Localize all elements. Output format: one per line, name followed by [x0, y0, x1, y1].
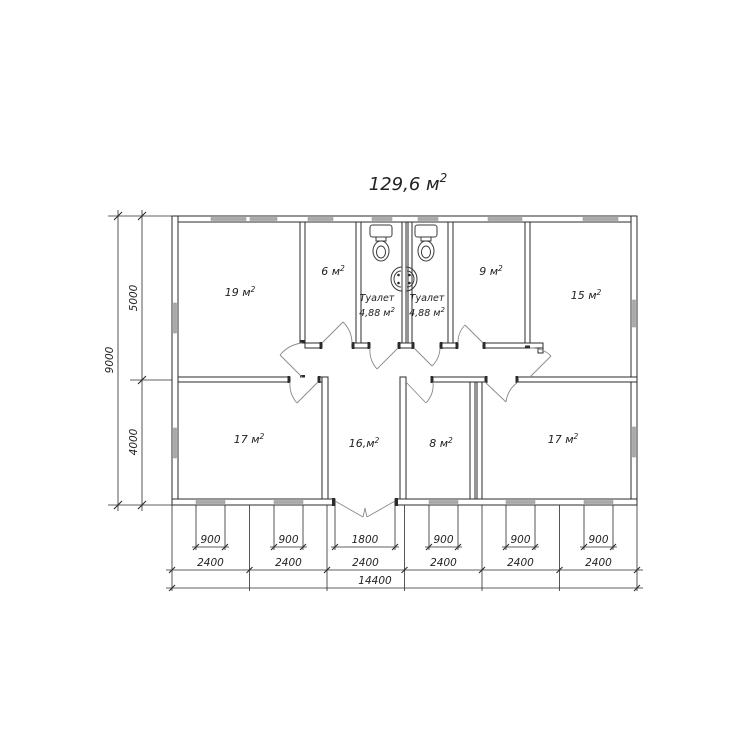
- window-marker: [250, 218, 277, 221]
- sink-icon: [391, 267, 402, 291]
- dim-opening-6: 900: [588, 534, 608, 546]
- door-swing-toilet1: [370, 348, 398, 369]
- dim-opening-2: 900: [278, 534, 298, 546]
- dim-module-6: 2400: [585, 557, 612, 569]
- toilet-icon: [415, 225, 437, 261]
- window-marker: [633, 427, 636, 457]
- window-marker: [506, 501, 535, 504]
- window-marker: [174, 303, 177, 333]
- dim-module-2: 2400: [275, 557, 302, 569]
- dim-opening-3: 1800: [352, 534, 379, 546]
- dim-module-3: 2400: [352, 557, 379, 569]
- total-area-title: 129,6 м2: [369, 171, 447, 195]
- dim-height-total: 9000: [104, 346, 116, 373]
- room-label-toilet2-area: 4,88 м2: [409, 306, 445, 319]
- room-label-19: 19 м2: [225, 285, 256, 299]
- room-label-6: 6 м2: [321, 264, 345, 278]
- toilet-icon: [370, 225, 392, 261]
- dim-module-5: 2400: [507, 557, 534, 569]
- door-swing-room8: [406, 382, 433, 403]
- room-label-toilet2-name: Туалет: [410, 293, 445, 304]
- door-swing-room19: [280, 343, 302, 377]
- room-label-17-right: 17 м2: [548, 432, 579, 446]
- room-label-17-left: 17 м2: [234, 432, 265, 446]
- window-marker: [274, 501, 303, 504]
- floor-plan-canvas: 129,6 м2: [0, 0, 750, 750]
- room-labels: 19 м2 6 м2 Туалет 4,88 м2 Туалет 4,88 м2…: [225, 264, 602, 450]
- dim-width-total: 14400: [358, 575, 392, 587]
- room-label-toilet1-name: Туалет: [360, 293, 395, 304]
- window-marker: [633, 300, 636, 327]
- dimension-lines-bottom: 900 900 1800 900 900 900 2400 2400 2400 …: [166, 505, 643, 591]
- dimension-lines-left: 5000 4000 9000: [104, 210, 172, 511]
- dim-height-bottom: 4000: [128, 428, 140, 455]
- dim-opening-4: 900: [433, 534, 453, 546]
- window-marker: [418, 218, 438, 221]
- dim-module-1: 2400: [197, 557, 224, 569]
- door-swing-room6: [322, 322, 352, 343]
- window-marker: [488, 218, 522, 221]
- window-marker: [196, 501, 225, 504]
- entrance-double-door: [335, 501, 395, 517]
- dim-height-top: 5000: [128, 284, 140, 311]
- doors: [280, 322, 551, 517]
- room-label-hall-16: 16,м2: [349, 436, 380, 450]
- window-marker: [584, 501, 613, 504]
- room-label-8: 8 м2: [429, 436, 453, 450]
- door-swing-room9: [458, 325, 483, 343]
- door-swing-room17-right: [485, 382, 518, 402]
- window-marker: [174, 428, 177, 458]
- floor-plan-drawing: 129,6 м2: [0, 0, 750, 750]
- walls: [172, 216, 637, 506]
- room-label-toilet1-area: 4,88 м2: [359, 306, 395, 319]
- door-swing-room17-left: [290, 382, 318, 403]
- window-marker: [583, 218, 618, 221]
- window-marker: [429, 501, 458, 504]
- room-label-9: 9 м2: [479, 264, 503, 278]
- window-marker: [308, 218, 333, 221]
- dim-module-4: 2400: [430, 557, 457, 569]
- window-marker: [372, 218, 392, 221]
- room-label-15: 15 м2: [571, 288, 602, 302]
- door-swing-toilet2: [414, 348, 440, 366]
- dim-opening-5: 900: [510, 534, 530, 546]
- dim-opening-1: 900: [200, 534, 220, 546]
- window-marker: [211, 218, 246, 221]
